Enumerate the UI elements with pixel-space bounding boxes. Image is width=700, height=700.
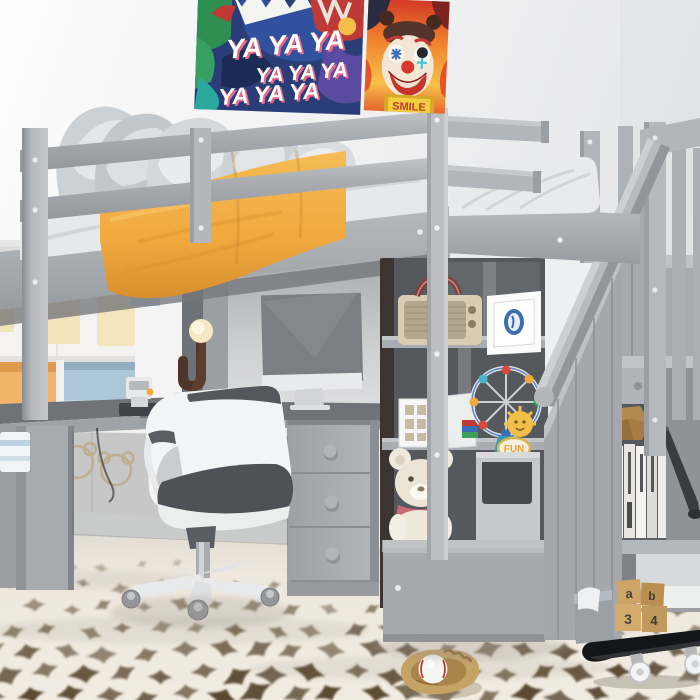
svg-text:3: 3 xyxy=(624,611,632,627)
svg-text:4: 4 xyxy=(650,613,658,628)
svg-text:SMILE: SMILE xyxy=(392,100,426,113)
svg-text:b: b xyxy=(648,589,656,603)
